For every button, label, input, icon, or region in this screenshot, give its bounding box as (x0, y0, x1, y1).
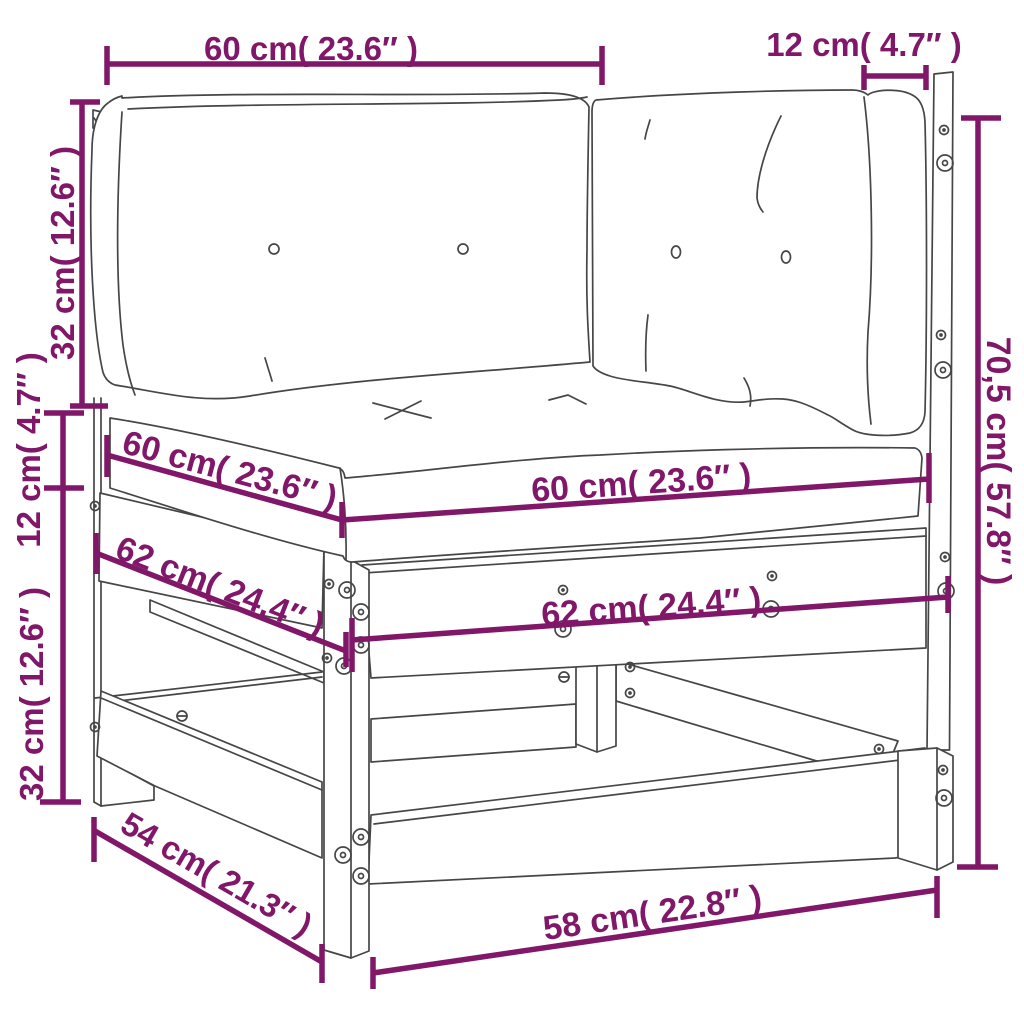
svg-text:32 cm( 12.6″ ): 32 cm( 12.6″ ) (44, 146, 81, 360)
svg-text:32 cm( 12.6″ ): 32 cm( 12.6″ ) (13, 587, 50, 801)
svg-text:60 cm( 23.6″ ): 60 cm( 23.6″ ) (204, 30, 418, 67)
svg-text:12 cm( 4.7″ ): 12 cm( 4.7″ ) (766, 26, 962, 63)
svg-text:12 cm( 4.7″ ): 12 cm( 4.7″ ) (10, 352, 47, 548)
svg-text:70,5 cm( 57.8″ ): 70,5 cm( 57.8″ ) (979, 337, 1017, 586)
